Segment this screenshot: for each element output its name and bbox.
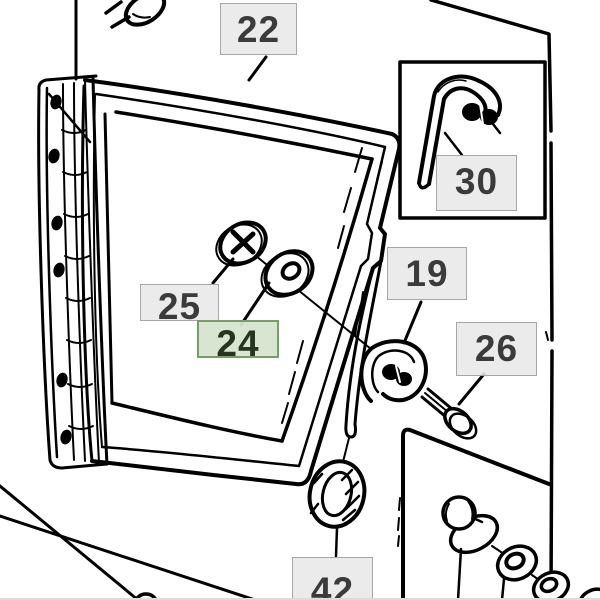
part-number-24: 24 <box>199 324 277 364</box>
part-number-19: 19 <box>388 248 466 300</box>
glass-pane <box>105 112 382 441</box>
diagram-line-art <box>0 0 600 600</box>
hook-latch <box>361 341 425 401</box>
part-number-22: 22 <box>221 4 296 56</box>
part-label-25[interactable]: 25 <box>140 284 219 321</box>
window-hinge <box>39 76 107 468</box>
mounting-screw <box>422 389 481 443</box>
part-number-26: 26 <box>457 323 536 375</box>
window-seal-frame <box>82 80 399 484</box>
latch-strap <box>346 261 381 437</box>
parts-diagram-canvas: 22 30 19 26 25 24 42 <box>0 0 600 600</box>
part-number-30: 30 <box>437 156 516 208</box>
part-label-30[interactable]: 30 <box>436 155 517 211</box>
bolt-washer-stack <box>443 497 600 600</box>
top-screw-fragment <box>106 0 170 31</box>
part-number-42: 42 <box>293 568 372 600</box>
bottom-left-lines <box>0 486 255 600</box>
part-label-26[interactable]: 26 <box>456 322 537 376</box>
phillips-screw <box>209 214 274 274</box>
rubber-grommet <box>303 438 371 556</box>
part-label-22[interactable]: 22 <box>220 3 297 55</box>
part-label-24-highlighted[interactable]: 24 <box>197 320 279 358</box>
part-label-19[interactable]: 19 <box>387 247 467 300</box>
part-label-42[interactable]: 42 <box>292 557 373 600</box>
